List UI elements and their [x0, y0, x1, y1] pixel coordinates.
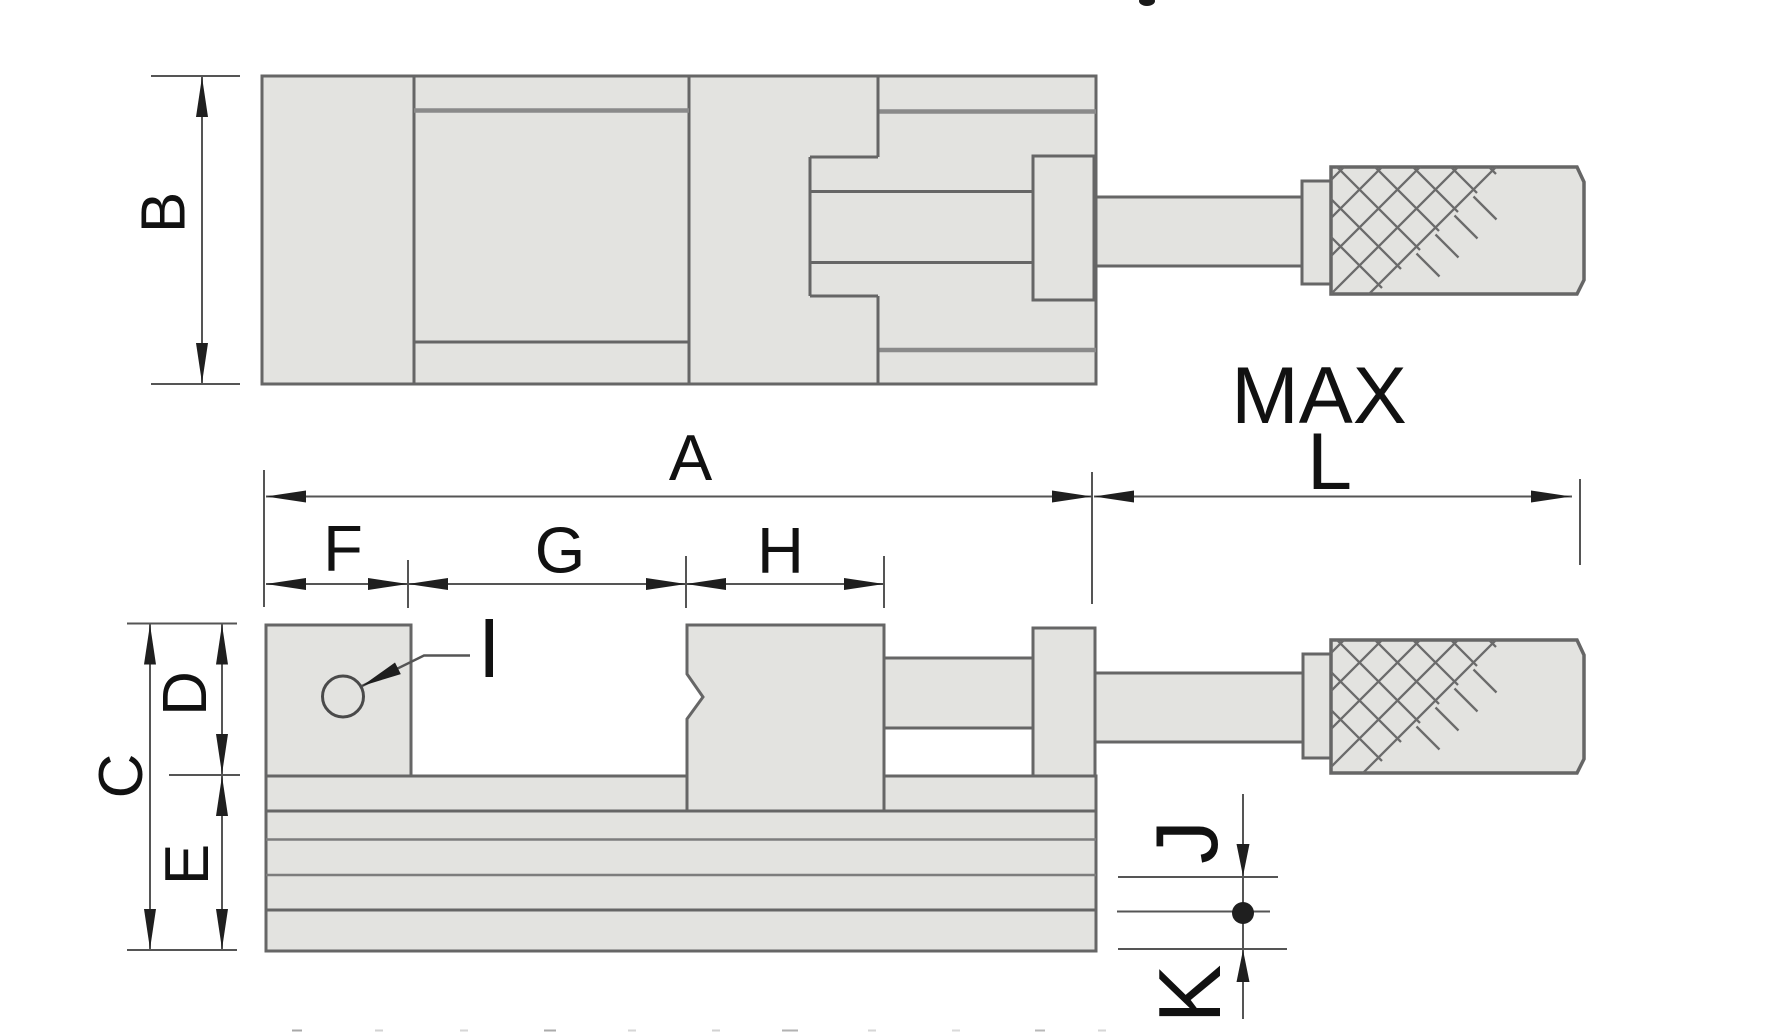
- svg-text:G: G: [535, 514, 586, 587]
- svg-text:E: E: [153, 844, 222, 885]
- svg-text:K: K: [1140, 965, 1239, 1024]
- svg-text:F: F: [323, 512, 363, 585]
- svg-text:L: L: [1307, 417, 1352, 507]
- svg-text:B: B: [130, 192, 199, 233]
- svg-text:H: H: [757, 514, 804, 587]
- svg-text:C: C: [87, 754, 156, 799]
- svg-text:J: J: [1137, 820, 1236, 864]
- svg-text:A: A: [669, 421, 713, 494]
- svg-text:D: D: [151, 671, 220, 716]
